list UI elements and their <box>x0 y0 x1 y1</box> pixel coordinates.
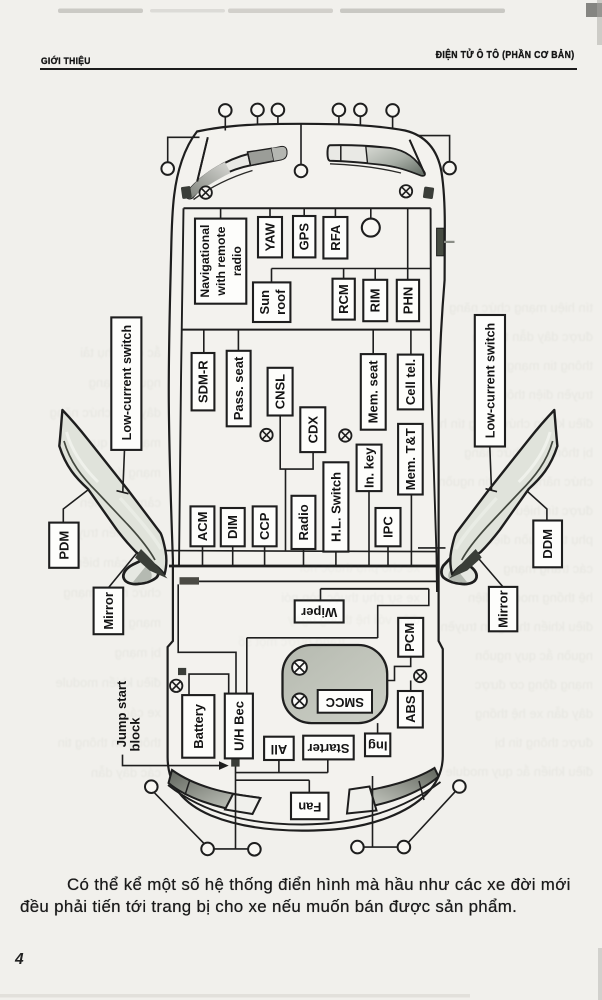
svg-text:Battery: Battery <box>191 703 206 749</box>
svg-text:Sun: Sun <box>257 290 272 315</box>
svg-text:In. key: In. key <box>362 447 377 488</box>
svg-text:RCM: RCM <box>336 284 351 314</box>
svg-text:CDX: CDX <box>305 416 320 444</box>
svg-text:ACM: ACM <box>195 511 210 541</box>
svg-text:Cell tel.: Cell tel. <box>403 359 418 405</box>
svg-text:H.L. Switch: H.L. Switch <box>328 472 343 542</box>
svg-text:PHN: PHN <box>400 287 415 314</box>
svg-text:IPC: IPC <box>381 516 396 538</box>
svg-text:GPS: GPS <box>297 223 312 251</box>
svg-text:U/H Bec: U/H Bec <box>231 701 246 751</box>
svg-text:PCM: PCM <box>402 623 417 652</box>
svg-text:with remote: with remote <box>214 226 228 296</box>
svg-text:YAW: YAW <box>263 222 278 251</box>
svg-text:RIM: RIM <box>368 289 383 313</box>
svg-text:Mem. T&T: Mem. T&T <box>403 428 418 490</box>
svg-text:Starter: Starter <box>308 741 350 756</box>
svg-text:block: block <box>128 717 143 752</box>
svg-text:Mirror: Mirror <box>101 592 116 630</box>
svg-text:Low-current switch: Low-current switch <box>483 323 497 438</box>
svg-text:Pass. seat: Pass. seat <box>231 356 246 420</box>
svg-text:ABS: ABS <box>403 695 418 723</box>
svg-text:CNSL: CNSL <box>273 374 288 409</box>
svg-text:SMCC: SMCC <box>325 695 364 710</box>
svg-text:Fan: Fan <box>298 800 321 815</box>
svg-text:SDM-R: SDM-R <box>196 360 211 403</box>
svg-text:Mem. seat: Mem. seat <box>366 360 381 424</box>
svg-text:Low-current switch: Low-current switch <box>120 325 134 440</box>
svg-text:All: All <box>271 742 288 757</box>
svg-text:DIM: DIM <box>225 515 240 539</box>
svg-text:DDM: DDM <box>540 529 555 559</box>
svg-text:CCP: CCP <box>257 512 272 540</box>
svg-text:Navigational: Navigational <box>198 225 212 298</box>
svg-text:PDM: PDM <box>56 531 71 560</box>
svg-text:Mirror: Mirror <box>496 590 511 628</box>
svg-text:roof: roof <box>273 289 288 315</box>
svg-text:Ing: Ing <box>368 738 388 753</box>
svg-text:radio: radio <box>230 246 244 277</box>
svg-text:RFA: RFA <box>328 224 343 251</box>
svg-text:Radio: Radio <box>296 504 311 540</box>
